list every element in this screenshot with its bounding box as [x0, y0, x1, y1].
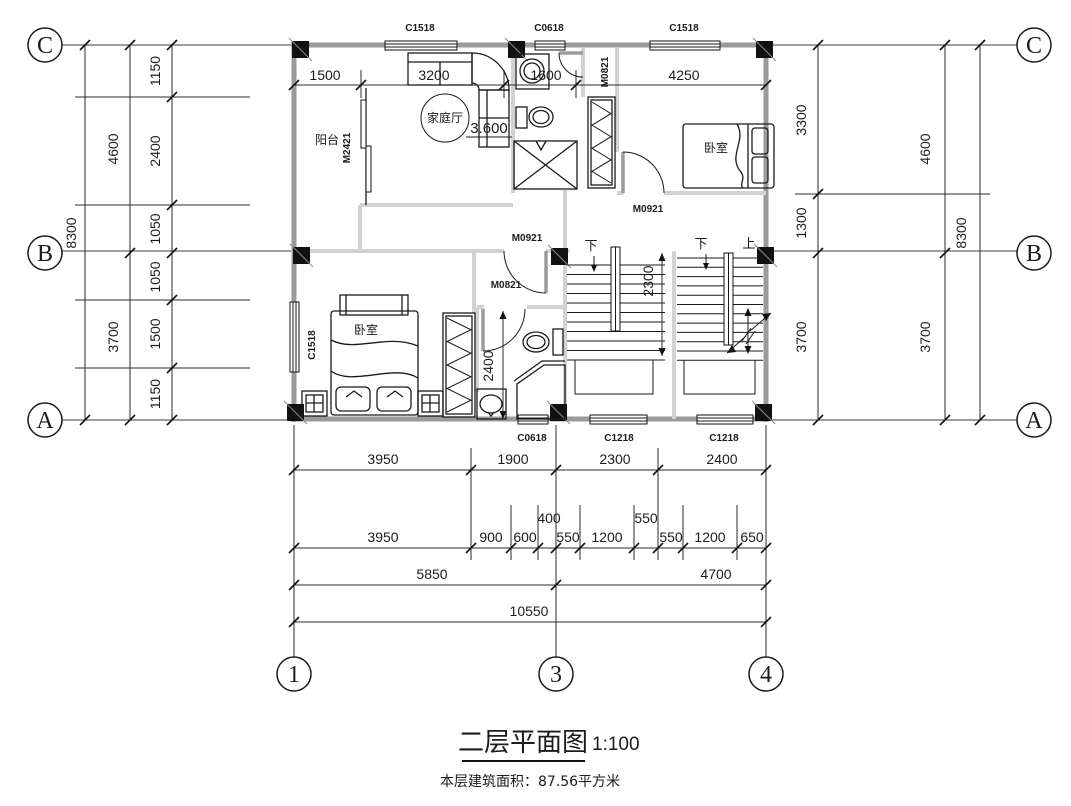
bed-top — [683, 124, 774, 188]
left-dimension-texts: 1150 2400 1050 1050 1500 1150 4600 3700 … — [63, 56, 163, 409]
dim-2400-r1: 2400 — [706, 451, 737, 467]
dim-5850: 5850 — [416, 566, 447, 582]
window-label-c0618-bottom: C0618 — [517, 433, 547, 444]
dim-1150-a: 1150 — [147, 56, 163, 86]
dim-8300-r: 8300 — [953, 217, 969, 248]
dim-2400-l: 2400 — [147, 135, 163, 166]
dim-3950-r1: 3950 — [367, 451, 398, 467]
dim-4250: 4250 — [668, 67, 699, 83]
door-arc-bath-top — [559, 53, 583, 77]
dim-2300-r1: 2300 — [599, 451, 630, 467]
floor-plan-drawing: C B A C B A 1 3 4 1500 3200 1600 4250 11… — [0, 0, 1071, 806]
dim-600-r2: 600 — [513, 529, 537, 545]
dim-1050-b: 1050 — [147, 261, 163, 292]
dim-1600: 1600 — [530, 67, 561, 83]
grid-label-b-left: B — [37, 241, 53, 267]
grid-label-a-right: A — [1025, 408, 1043, 434]
walls — [291, 42, 769, 422]
top-dimension-texts: 1500 3200 1600 4250 — [309, 67, 699, 83]
right-dimension-texts: 3300 1300 3700 4600 3700 8300 — [793, 104, 969, 352]
toilet-tank — [553, 329, 563, 355]
bed-bottom — [302, 295, 443, 416]
dim-650-r2: 650 — [740, 529, 764, 545]
dim-1500: 1500 — [309, 67, 340, 83]
dim-8300-l: 8300 — [63, 217, 79, 248]
door-label-m2421: M2421 — [342, 132, 353, 163]
window-label-c1518-left: C1518 — [307, 330, 318, 360]
dim-10550: 10550 — [510, 603, 549, 619]
doors — [483, 53, 664, 351]
dim-550-r2c: 550 — [659, 529, 683, 545]
bottom-dimension-texts: 3950 1900 2300 2400 3950 900 600 400 550… — [367, 451, 763, 619]
dim-400-r2: 400 — [537, 510, 561, 526]
dim-3700-l: 3700 — [105, 321, 121, 352]
grid-label-a-left: A — [36, 408, 54, 434]
door-label-m0921-hall: M0921 — [512, 233, 543, 244]
floor-plan-sheet: C B A C B A 1 3 4 1500 3200 1600 4250 11… — [0, 0, 1071, 806]
dim-4600-r: 4600 — [917, 133, 933, 164]
dim-900-r2: 900 — [479, 529, 503, 545]
dim-1300-r: 1300 — [793, 207, 809, 238]
room-label-bedroom-bottom: 卧室 — [354, 322, 378, 337]
window-label-c0618-top: C0618 — [534, 23, 564, 34]
window-label-c1518-top-left: C1518 — [405, 23, 435, 34]
stair-landing-right — [684, 360, 755, 394]
grid-label-b-right: B — [1026, 241, 1042, 267]
washbasin — [480, 395, 502, 413]
dim-3200: 3200 — [418, 67, 449, 83]
dim-550-r2b: 550 — [634, 510, 658, 526]
grid-label-c-left: C — [37, 33, 53, 59]
dim-2400-bath: 2400 — [480, 350, 496, 381]
window-label-c1518-top-right: C1518 — [669, 23, 699, 34]
title-block: 二层平面图 1:100 本层建筑面积：87.56平方米 — [440, 728, 640, 790]
drawing-scale: 1:100 — [592, 734, 640, 755]
dim-550-r2a: 550 — [556, 529, 580, 545]
room-label-bedroom-top: 卧室 — [704, 140, 728, 155]
dim-1200-r2b: 1200 — [694, 529, 725, 545]
toilet-tank — [516, 107, 527, 128]
stair-landing-left — [575, 360, 653, 394]
room-label-family: 家庭厅 — [427, 110, 463, 125]
stair-down-right: 下 — [694, 237, 707, 252]
window-label-c1218-b: C1218 — [709, 433, 739, 444]
dim-4600-l: 4600 — [105, 133, 121, 164]
stair-up-right: 上 — [742, 237, 755, 252]
dim-3700-ri: 3700 — [793, 321, 809, 352]
dim-1050-a: 1050 — [147, 213, 163, 244]
dim-3700-rm: 3700 — [917, 321, 933, 352]
grid-label-c-right: C — [1026, 33, 1042, 59]
stair-direction-texts: 下 下 上 — [584, 237, 755, 254]
door-label-m0821-top: M0821 — [600, 56, 611, 87]
window-label-c1218-a: C1218 — [604, 433, 634, 444]
stair-down-left: 下 — [584, 239, 597, 254]
door-label-m0821-bottom: M0821 — [491, 280, 522, 291]
wardrobes — [443, 97, 615, 417]
dim-1200-r2a: 1200 — [591, 529, 622, 545]
balcony-door — [361, 100, 371, 192]
stair-treads — [567, 258, 763, 360]
dim-1500-l: 1500 — [147, 318, 163, 349]
door-arc-bedroom-top — [623, 152, 664, 193]
door-label-m0921-bedroom: M0921 — [633, 204, 664, 215]
elevation-value: 3.600 — [470, 120, 508, 137]
bench — [340, 295, 408, 315]
grid-label-3: 3 — [550, 662, 562, 688]
room-label-texts: 阳台 家庭厅 3.600 卧室 卧室 — [315, 110, 728, 337]
structural-columns — [284, 38, 777, 424]
dim-1150-b: 1150 — [147, 379, 163, 409]
room-label-balcony: 阳台 — [315, 132, 339, 147]
area-note: 本层建筑面积：87.56平方米 — [440, 774, 620, 790]
grid-label-1: 1 — [288, 662, 300, 688]
dim-3950-r2: 3950 — [367, 529, 398, 545]
drawing-title: 二层平面图 — [458, 728, 588, 758]
pillow — [377, 387, 411, 411]
grid-label-4: 4 — [760, 662, 772, 688]
dim-1900-r1: 1900 — [497, 451, 528, 467]
grid-bubble-labels: C B A C B A 1 3 4 — [36, 33, 1043, 688]
dim-3300-r: 3300 — [793, 104, 809, 135]
pillow — [336, 387, 370, 411]
dim-4700: 4700 — [700, 566, 731, 582]
dim-2300-stair: 2300 — [640, 265, 656, 296]
